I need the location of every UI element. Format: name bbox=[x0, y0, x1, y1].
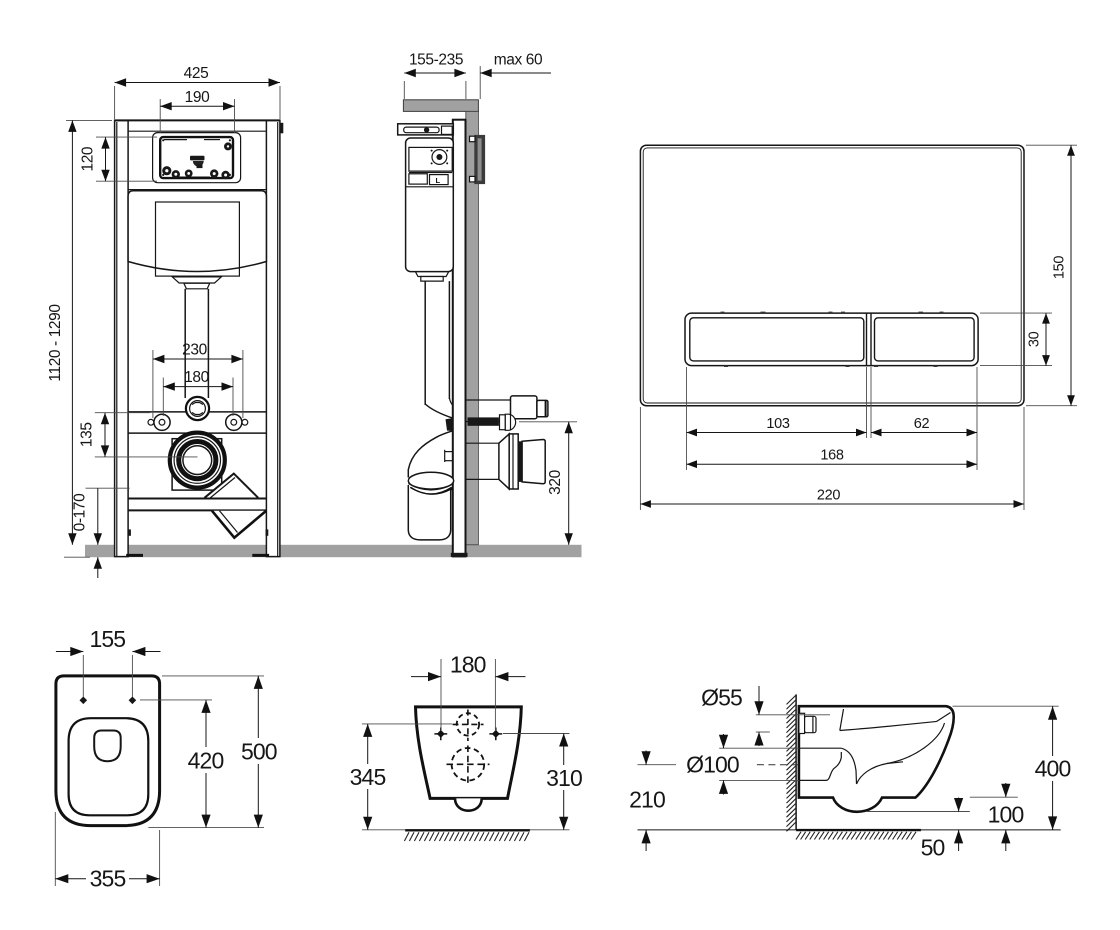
svg-text:120: 120 bbox=[80, 146, 97, 171]
svg-text:Ø100: Ø100 bbox=[686, 752, 739, 778]
svg-text:425: 425 bbox=[184, 65, 209, 82]
svg-text:L: L bbox=[436, 176, 441, 185]
svg-text:320: 320 bbox=[547, 469, 564, 494]
svg-text:168: 168 bbox=[820, 448, 844, 464]
svg-text:210: 210 bbox=[629, 787, 665, 813]
svg-text:1120 - 1290: 1120 - 1290 bbox=[47, 304, 64, 382]
svg-text:310: 310 bbox=[546, 765, 582, 791]
svg-text:355: 355 bbox=[90, 866, 126, 892]
svg-text:150: 150 bbox=[1052, 256, 1068, 280]
svg-text:500: 500 bbox=[241, 739, 277, 765]
svg-text:135: 135 bbox=[79, 422, 96, 447]
svg-text:Ø55: Ø55 bbox=[701, 685, 742, 711]
svg-text:103: 103 bbox=[766, 416, 790, 432]
svg-text:62: 62 bbox=[914, 416, 930, 432]
svg-text:345: 345 bbox=[350, 764, 386, 790]
svg-text:50: 50 bbox=[921, 835, 945, 861]
svg-text:155-235: 155-235 bbox=[409, 52, 463, 69]
svg-text:420: 420 bbox=[188, 748, 224, 774]
svg-text:180: 180 bbox=[184, 369, 209, 386]
svg-text:220: 220 bbox=[817, 488, 841, 504]
svg-text:100: 100 bbox=[988, 802, 1024, 828]
svg-text:400: 400 bbox=[1035, 756, 1071, 782]
svg-text:max 60: max 60 bbox=[494, 52, 543, 69]
svg-text:230: 230 bbox=[182, 342, 207, 359]
svg-text:190: 190 bbox=[185, 89, 210, 106]
svg-text:180: 180 bbox=[450, 651, 486, 677]
svg-text:0-170: 0-170 bbox=[72, 493, 89, 531]
svg-text:30: 30 bbox=[1027, 331, 1043, 347]
svg-text:155: 155 bbox=[89, 626, 125, 652]
